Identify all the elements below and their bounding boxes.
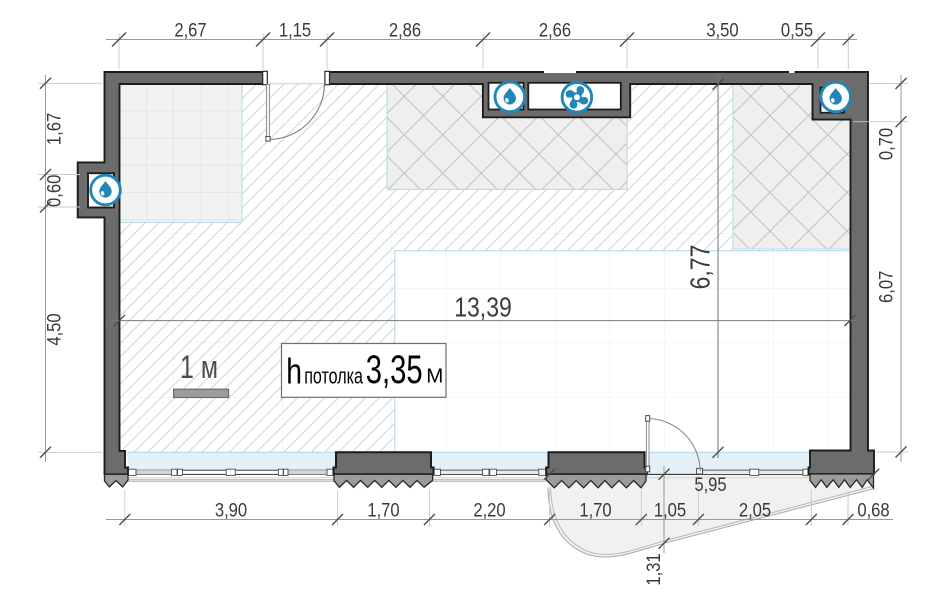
svg-text:М: М — [426, 364, 443, 387]
svg-text:13,39: 13,39 — [454, 293, 512, 323]
svg-text:5,95: 5,95 — [694, 473, 726, 496]
svg-text:2,66: 2,66 — [539, 18, 571, 41]
svg-text:1,15: 1,15 — [279, 18, 311, 41]
svg-text:3,35: 3,35 — [366, 349, 423, 392]
svg-text:h: h — [286, 351, 302, 391]
svg-text:2,20: 2,20 — [473, 498, 505, 521]
svg-text:потолка: потолка — [304, 365, 363, 389]
svg-text:0,55: 0,55 — [781, 18, 813, 41]
svg-text:0,68: 0,68 — [857, 498, 889, 521]
svg-text:6,77: 6,77 — [686, 245, 716, 290]
svg-text:3,90: 3,90 — [215, 498, 247, 521]
svg-text:2,05: 2,05 — [739, 498, 771, 521]
svg-text:1,67: 1,67 — [42, 113, 65, 145]
svg-text:4,50: 4,50 — [42, 313, 65, 345]
svg-text:1,70: 1,70 — [367, 498, 399, 521]
svg-text:1,05: 1,05 — [654, 498, 686, 521]
svg-text:2,86: 2,86 — [389, 18, 421, 41]
svg-text:2,67: 2,67 — [174, 18, 206, 41]
svg-text:1 м: 1 м — [180, 350, 218, 386]
svg-text:0,60: 0,60 — [42, 175, 65, 207]
svg-text:0,70: 0,70 — [874, 128, 897, 160]
svg-text:1,70: 1,70 — [579, 498, 611, 521]
svg-text:6,07: 6,07 — [874, 271, 897, 303]
svg-text:3,50: 3,50 — [706, 18, 738, 41]
svg-text:1,31: 1,31 — [641, 553, 664, 585]
